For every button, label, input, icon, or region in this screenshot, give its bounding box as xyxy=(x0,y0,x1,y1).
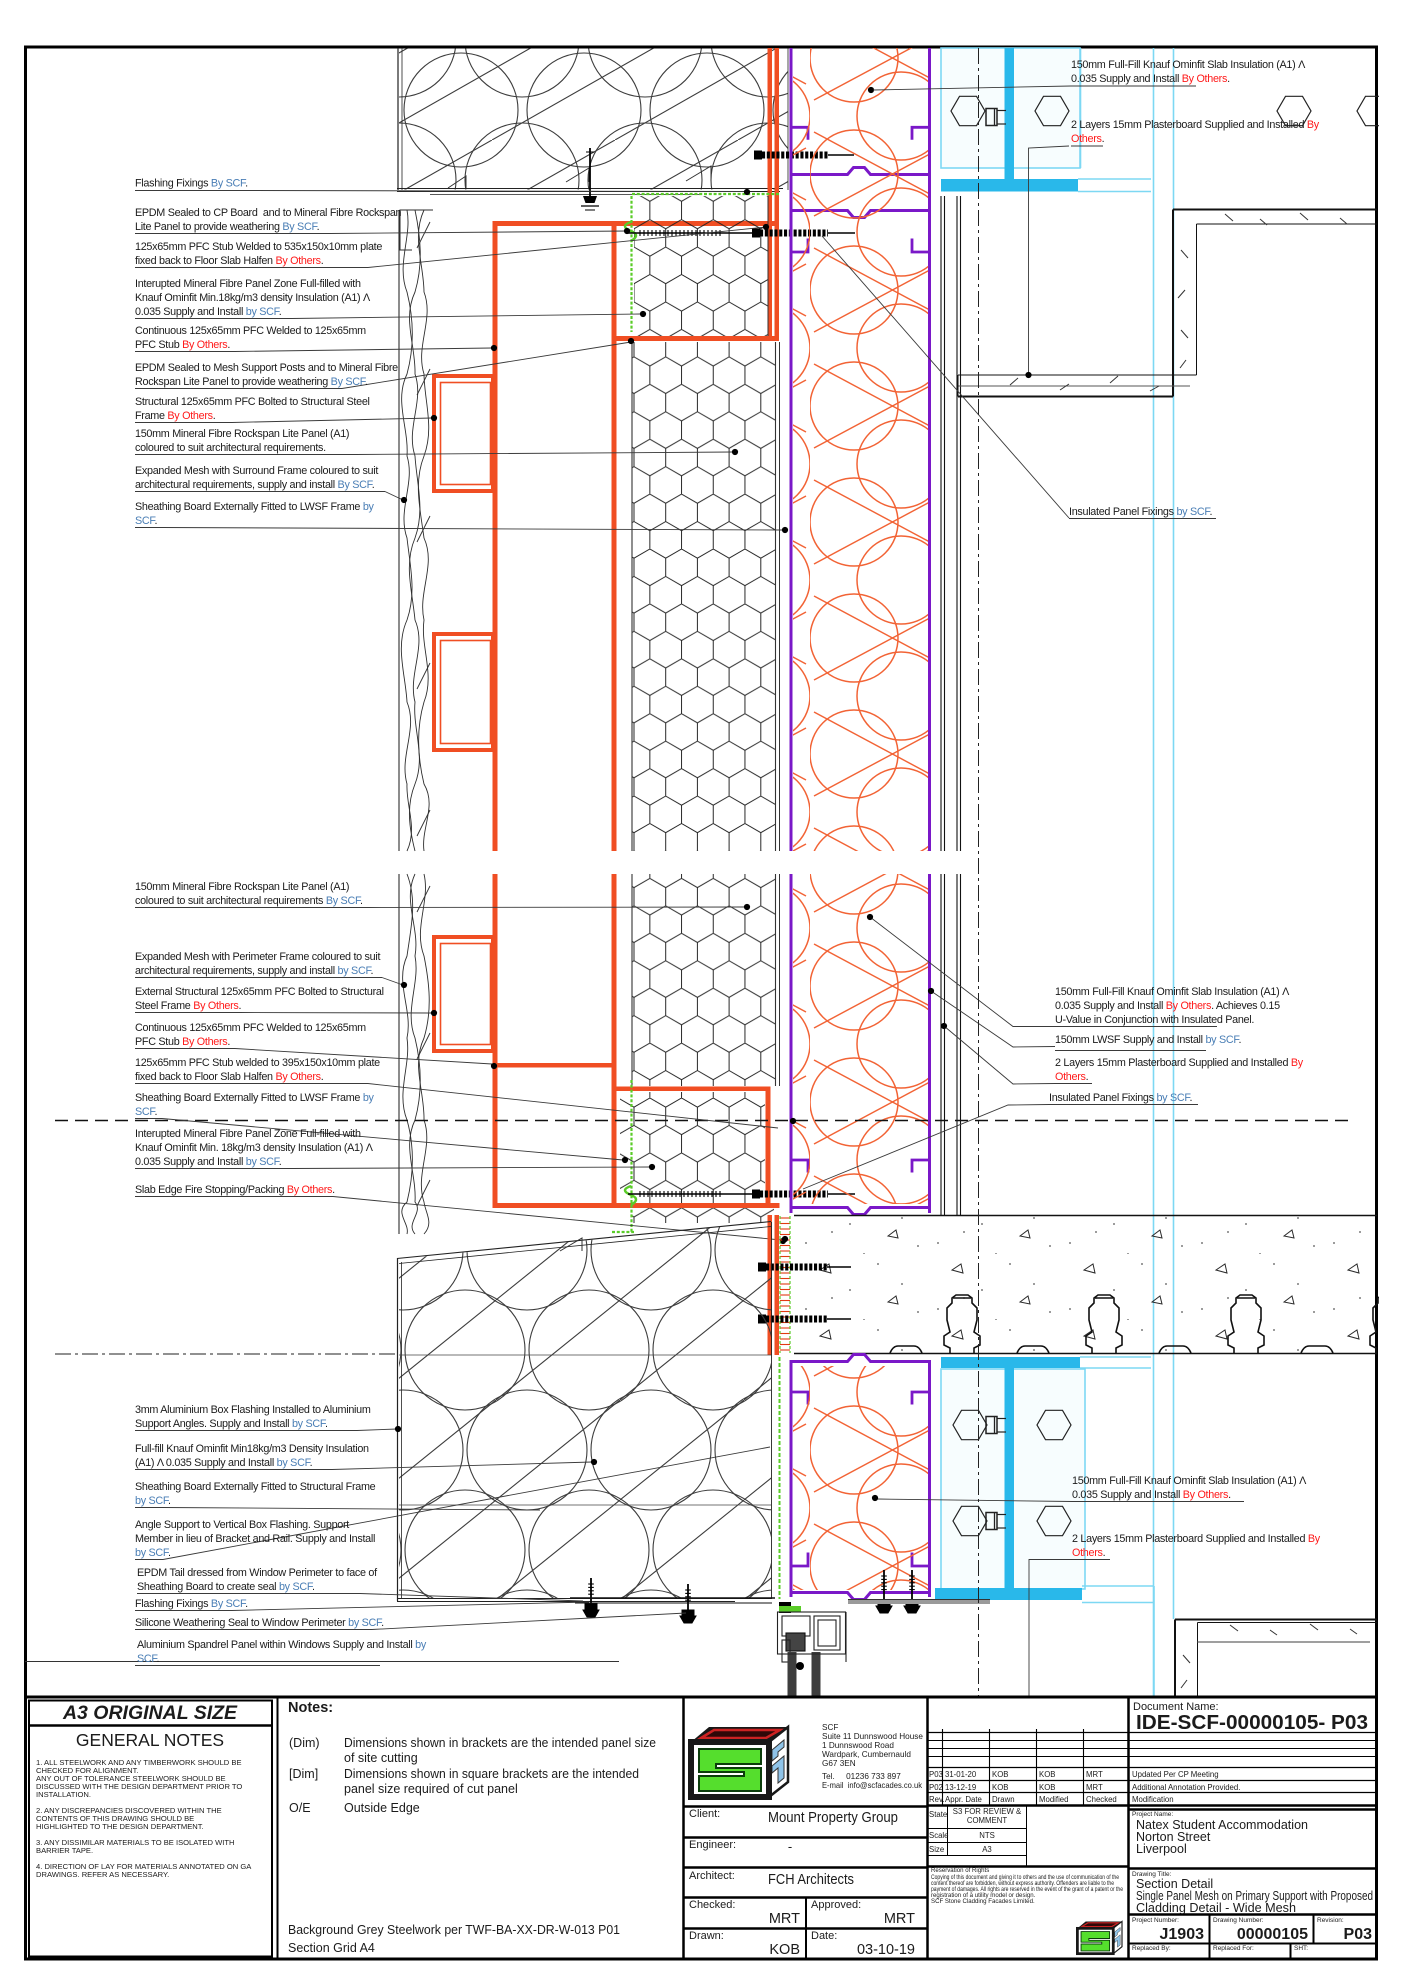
svg-text:0.035 Supply and Install By Ot: 0.035 Supply and Install By Others. Achi… xyxy=(1055,1000,1280,1012)
svg-text:Section Grid A4: Section Grid A4 xyxy=(288,1941,375,1955)
svg-text:Liverpool: Liverpool xyxy=(1136,1842,1187,1856)
svg-text:Silicone Weathering Seal to Wi: Silicone Weathering Seal to Window Perim… xyxy=(135,1617,384,1629)
svg-text:KOB: KOB xyxy=(992,1783,1008,1792)
svg-text:Drawn:: Drawn: xyxy=(689,1930,724,1942)
svg-text:GENERAL NOTES: GENERAL NOTES xyxy=(76,1730,224,1750)
svg-text:DRAWINGS. REFER AS NECESSARY.: DRAWINGS. REFER AS NECESSARY. xyxy=(36,1870,169,1879)
svg-text:03-10-19: 03-10-19 xyxy=(857,1942,915,1958)
svg-text:Project Number:: Project Number: xyxy=(1132,1917,1179,1924)
svg-text:(A1) Λ 0.035 Supply and Instal: (A1) Λ 0.035 Supply and Install by SCF. xyxy=(135,1457,313,1469)
svg-text:Sheathing Board Externally Fit: Sheathing Board Externally Fitted to LWS… xyxy=(135,501,375,513)
svg-text:E-mail info@scfacades.co.uk: E-mail info@scfacades.co.uk xyxy=(822,1781,923,1790)
svg-text:SCF.: SCF. xyxy=(137,1653,160,1665)
svg-text:P03: P03 xyxy=(929,1770,943,1779)
svg-text:0.035 Supply and Install By Ot: 0.035 Supply and Install By Others. xyxy=(1071,73,1230,85)
svg-text:3mm Aluminium Box Flashing Ins: 3mm Aluminium Box Flashing Installed to … xyxy=(135,1404,371,1416)
svg-text:Interupted Mineral Fibre Panel: Interupted Mineral Fibre Panel Zone Full… xyxy=(135,278,361,290)
svg-text:Aluminium Spandrel Panel withi: Aluminium Spandrel Panel within Windows … xyxy=(137,1639,427,1651)
svg-text:Frame By Others.: Frame By Others. xyxy=(135,410,216,422)
svg-text:Flashing Fixings By SCF.: Flashing Fixings By SCF. xyxy=(135,178,248,190)
svg-text:150mm LWSF Supply and Install: 150mm LWSF Supply and Install by SCF. xyxy=(1055,1034,1241,1046)
svg-text:150mm Mineral Fibre Rockspan L: 150mm Mineral Fibre Rockspan Lite Panel … xyxy=(135,881,349,893)
svg-text:PFC Stub By Others.: PFC Stub By Others. xyxy=(135,1036,230,1048)
svg-text:PFC Stub By Others.: PFC Stub By Others. xyxy=(135,339,230,351)
svg-text:U-Value in Conjunction with In: U-Value in Conjunction with Insulated Pa… xyxy=(1055,1014,1254,1026)
svg-text:fixed back to Floor Slab Halfe: fixed back to Floor Slab Halfen By Other… xyxy=(135,1071,324,1083)
svg-text:INSTALLATION.: INSTALLATION. xyxy=(36,1790,91,1799)
svg-text:Sheathing Board Externally Fit: Sheathing Board Externally Fitted to Str… xyxy=(135,1481,376,1493)
svg-text:Angle Support to Vertical Box: Angle Support to Vertical Box Flashing. … xyxy=(135,1519,349,1531)
svg-text:KOB: KOB xyxy=(1039,1770,1055,1779)
svg-text:Drawing Number:: Drawing Number: xyxy=(1213,1917,1264,1924)
svg-text:A3: A3 xyxy=(982,1845,992,1854)
svg-text:Replaced By:: Replaced By: xyxy=(1132,1945,1171,1952)
svg-text:Insulated Panel Fixings by SCF: Insulated Panel Fixings by SCF. xyxy=(1069,506,1212,518)
svg-text:Flashing Fixings By SCF.: Flashing Fixings By SCF. xyxy=(135,1598,248,1610)
svg-text:SCF Stone Cladding Facades Lim: SCF Stone Cladding Facades Limited. xyxy=(931,1898,1035,1905)
svg-text:1 Dunnswood Road: 1 Dunnswood Road xyxy=(822,1741,894,1750)
svg-text:Dimensions shown in brackets a: Dimensions shown in brackets are the int… xyxy=(344,1736,656,1750)
svg-text:Revision:: Revision: xyxy=(1317,1917,1344,1924)
svg-text:Insulated Panel Fixings by SCF: Insulated Panel Fixings by SCF. xyxy=(1049,1092,1192,1104)
svg-text:panel size required of cut pan: panel size required of cut panel xyxy=(344,1782,518,1796)
svg-text:P02: P02 xyxy=(929,1783,943,1792)
svg-text:KOB: KOB xyxy=(769,1942,800,1958)
svg-text:Modification: Modification xyxy=(1132,1795,1174,1804)
svg-text:IDE-SCF-00000105- P03: IDE-SCF-00000105- P03 xyxy=(1136,1712,1368,1734)
svg-text:KOB: KOB xyxy=(1039,1783,1055,1792)
svg-text:EPDM Sealed to CP Board and t: EPDM Sealed to CP Board and to Mineral F… xyxy=(135,207,402,219)
svg-text:Architect:: Architect: xyxy=(689,1870,735,1882)
svg-text:150mm Mineral Fibre Rockspan L: 150mm Mineral Fibre Rockspan Lite Panel … xyxy=(135,428,349,440)
svg-text:Notes:: Notes: xyxy=(288,1700,333,1716)
svg-text:coloured to suit architectural: coloured to suit architectural requireme… xyxy=(135,442,326,454)
svg-text:0.035 Supply and Install by SC: 0.035 Supply and Install by SCF. xyxy=(135,306,282,318)
svg-text:Others.: Others. xyxy=(1072,1547,1106,1559)
svg-text:125x65mm PFC Stub Welded to 53: 125x65mm PFC Stub Welded to 535x150x10mm… xyxy=(135,241,382,253)
svg-text:A3 ORIGINAL SIZE: A3 ORIGINAL SIZE xyxy=(62,1702,238,1724)
svg-text:architectural requirements, su: architectural requirements, supply and i… xyxy=(135,479,375,491)
svg-text:MRT: MRT xyxy=(884,1911,915,1927)
svg-text:P03: P03 xyxy=(1344,1926,1373,1943)
svg-text:Continuous 125x65mm PFC Welded: Continuous 125x65mm PFC Welded to 125x65… xyxy=(135,1022,366,1034)
svg-text:Date:: Date: xyxy=(811,1930,837,1942)
svg-text:Support Angles. Supply and Ins: Support Angles. Supply and Install by SC… xyxy=(135,1418,328,1430)
svg-text:Size: Size xyxy=(929,1845,944,1854)
svg-text:S3 FOR REVIEW &: S3 FOR REVIEW & xyxy=(953,1807,1022,1816)
svg-text:State: State xyxy=(929,1810,947,1819)
svg-text:Lite Panel to provide weatheri: Lite Panel to provide weathering By SCF. xyxy=(135,221,320,233)
svg-text:-: - xyxy=(788,1839,792,1854)
svg-text:EPDM Sealed to Mesh Support Po: EPDM Sealed to Mesh Support Posts and to… xyxy=(135,362,398,374)
svg-text:Expanded Mesh with Perimeter F: Expanded Mesh with Perimeter Frame colou… xyxy=(135,951,380,963)
svg-text:MRT: MRT xyxy=(1086,1783,1103,1792)
svg-text:BARRIER TAPE.: BARRIER TAPE. xyxy=(36,1846,93,1855)
svg-text:125x65mm PFC Stub welded to 39: 125x65mm PFC Stub welded to 395x150x10mm… xyxy=(135,1057,380,1069)
svg-text:Steel Frame By Others.: Steel Frame By Others. xyxy=(135,1000,242,1012)
svg-text:Others.: Others. xyxy=(1055,1071,1089,1083)
svg-text:31-01-20: 31-01-20 xyxy=(945,1770,977,1779)
svg-text:Dimensions shown in square bra: Dimensions shown in square brackets are … xyxy=(344,1767,639,1781)
svg-text:coloured to suit architectural: coloured to suit architectural requireme… xyxy=(135,895,363,907)
svg-text:G67 3EN: G67 3EN xyxy=(822,1759,856,1768)
svg-text:Outside Edge: Outside Edge xyxy=(344,1801,420,1815)
svg-text:Scale: Scale xyxy=(929,1831,949,1840)
svg-text:Continuous 125x65mm PFC Welded: Continuous 125x65mm PFC Welded to 125x65… xyxy=(135,325,366,337)
svg-text:Checked: Checked xyxy=(1086,1795,1117,1804)
svg-text:FCH Architects: FCH Architects xyxy=(768,1872,854,1888)
svg-text:150mm Full-Fill Knauf Ominfit: 150mm Full-Fill Knauf Ominfit Slab Insul… xyxy=(1072,1475,1307,1487)
svg-text:150mm Full-Fill Knauf Ominfit: 150mm Full-Fill Knauf Ominfit Slab Insul… xyxy=(1071,59,1306,71)
svg-text:Slab Edge Fire Stopping/Packin: Slab Edge Fire Stopping/Packing By Other… xyxy=(135,1184,335,1196)
svg-text:by SCF.: by SCF. xyxy=(135,1495,171,1507)
svg-text:SCF.: SCF. xyxy=(135,1106,158,1118)
svg-text:EPDM Tail dressed from Window: EPDM Tail dressed from Window Perimeter … xyxy=(137,1567,378,1579)
svg-text:Others.: Others. xyxy=(1071,133,1105,145)
svg-text:O/E: O/E xyxy=(289,1801,311,1815)
svg-text:2 Layers 15mm Plasterboard Sup: 2 Layers 15mm Plasterboard Supplied and … xyxy=(1055,1057,1304,1069)
svg-text:2 Layers 15mm Plasterboard Sup: 2 Layers 15mm Plasterboard Supplied and … xyxy=(1072,1533,1321,1545)
svg-text:13-12-19: 13-12-19 xyxy=(945,1783,976,1792)
svg-text:150mm Full-Fill Knauf Ominfit: 150mm Full-Fill Knauf Ominfit Slab Insul… xyxy=(1055,986,1290,998)
svg-text:SHT:: SHT: xyxy=(1294,1945,1308,1952)
svg-text:KOB: KOB xyxy=(992,1770,1008,1779)
svg-text:Sheathing Board Externally Fit: Sheathing Board Externally Fitted to LWS… xyxy=(135,1092,375,1104)
svg-text:Client:: Client: xyxy=(689,1808,720,1820)
svg-text:Reservation of Rights: Reservation of Rights xyxy=(931,1867,989,1874)
svg-text:Engineer:: Engineer: xyxy=(689,1839,736,1851)
svg-text:SCF: SCF xyxy=(822,1723,838,1732)
svg-text:Knauf Ominfit Min. 18kg/m3 den: Knauf Ominfit Min. 18kg/m3 density Insul… xyxy=(135,1142,374,1154)
svg-text:Tel. 01236 733 897: Tel. 01236 733 897 xyxy=(822,1772,901,1781)
svg-text:Project Name:: Project Name: xyxy=(1132,1811,1173,1818)
svg-text:Additional Annotation Provided: Additional Annotation Provided. xyxy=(1132,1783,1240,1792)
svg-text:2 Layers 15mm Plasterboard Sup: 2 Layers 15mm Plasterboard Supplied and … xyxy=(1071,119,1320,131)
svg-text:Background Grey Steelwork per: Background Grey Steelwork per TWF-BA-XX-… xyxy=(288,1923,620,1937)
svg-text:Appr. Date: Appr. Date xyxy=(945,1795,982,1804)
svg-text:Rev.: Rev. xyxy=(929,1795,944,1804)
svg-text:HIGHLIGHTED TO THE DESIGN DEPA: HIGHLIGHTED TO THE DESIGN DEPARTMENT. xyxy=(36,1822,204,1831)
svg-text:[Dim]: [Dim] xyxy=(289,1767,318,1781)
svg-text:Rockspan Lite Panel to provide: Rockspan Lite Panel to provide weatherin… xyxy=(135,376,368,388)
svg-text:by SCF.: by SCF. xyxy=(135,1547,171,1559)
svg-text:Expanded Mesh with Surround Fr: Expanded Mesh with Surround Frame colour… xyxy=(135,465,378,477)
svg-text:SCF.: SCF. xyxy=(135,515,158,527)
svg-text:MRT: MRT xyxy=(769,1911,800,1927)
svg-text:fixed back to Floor Slab Halfe: fixed back to Floor Slab Halfen By Other… xyxy=(135,255,324,267)
svg-text:Cladding Detail - Wide Mesh: Cladding Detail - Wide Mesh xyxy=(1136,1901,1296,1915)
svg-text:architectural requirements, su: architectural requirements, supply and i… xyxy=(135,965,374,977)
svg-text:NTS: NTS xyxy=(979,1831,995,1840)
svg-text:MRT: MRT xyxy=(1086,1770,1103,1779)
svg-text:Member in lieu of Bracket and: Member in lieu of Bracket and Rail. Supp… xyxy=(135,1533,375,1545)
svg-text:of site cutting: of site cutting xyxy=(344,1751,418,1765)
svg-text:0.035 Supply and Install By Ot: 0.035 Supply and Install By Others. xyxy=(1072,1489,1231,1501)
svg-text:Interupted Mineral Fibre Panel: Interupted Mineral Fibre Panel Zone Full… xyxy=(135,1128,361,1140)
svg-text:Modified: Modified xyxy=(1039,1795,1068,1804)
svg-text:Wardpark, Cumbernauld: Wardpark, Cumbernauld xyxy=(822,1750,911,1759)
svg-text:Full-fill Knauf Ominfit Min18k: Full-fill Knauf Ominfit Min18kg/m3 Densi… xyxy=(135,1443,369,1455)
svg-text:Mount Property Group: Mount Property Group xyxy=(768,1810,898,1826)
svg-text:Checked:: Checked: xyxy=(689,1899,735,1911)
svg-text:Structural 125x65mm PFC Bolted: Structural 125x65mm PFC Bolted to Struct… xyxy=(135,396,370,408)
svg-text:Sheathing Board to create seal: Sheathing Board to create seal by SCF. xyxy=(137,1581,315,1593)
svg-text:Approved:: Approved: xyxy=(811,1899,861,1911)
svg-text:00000105: 00000105 xyxy=(1237,1926,1308,1943)
svg-text:Updated Per CP Meeting: Updated Per CP Meeting xyxy=(1132,1770,1219,1779)
svg-text:Drawn: Drawn xyxy=(992,1795,1015,1804)
svg-text:Replaced For:: Replaced For: xyxy=(1213,1945,1254,1952)
svg-text:External Structural 125x65mm P: External Structural 125x65mm PFC Bolted … xyxy=(135,986,384,998)
svg-text:J1903: J1903 xyxy=(1160,1926,1205,1943)
svg-text:Suite 11 Dunnswood House: Suite 11 Dunnswood House xyxy=(822,1732,923,1741)
svg-text:(Dim): (Dim) xyxy=(289,1736,320,1750)
svg-text:COMMENT: COMMENT xyxy=(967,1816,1008,1825)
svg-text:0.035 Supply and Install by SC: 0.035 Supply and Install by SCF. xyxy=(135,1156,282,1168)
svg-text:Knauf Ominfit Min.18kg/m3 dens: Knauf Ominfit Min.18kg/m3 density Insula… xyxy=(135,292,371,304)
